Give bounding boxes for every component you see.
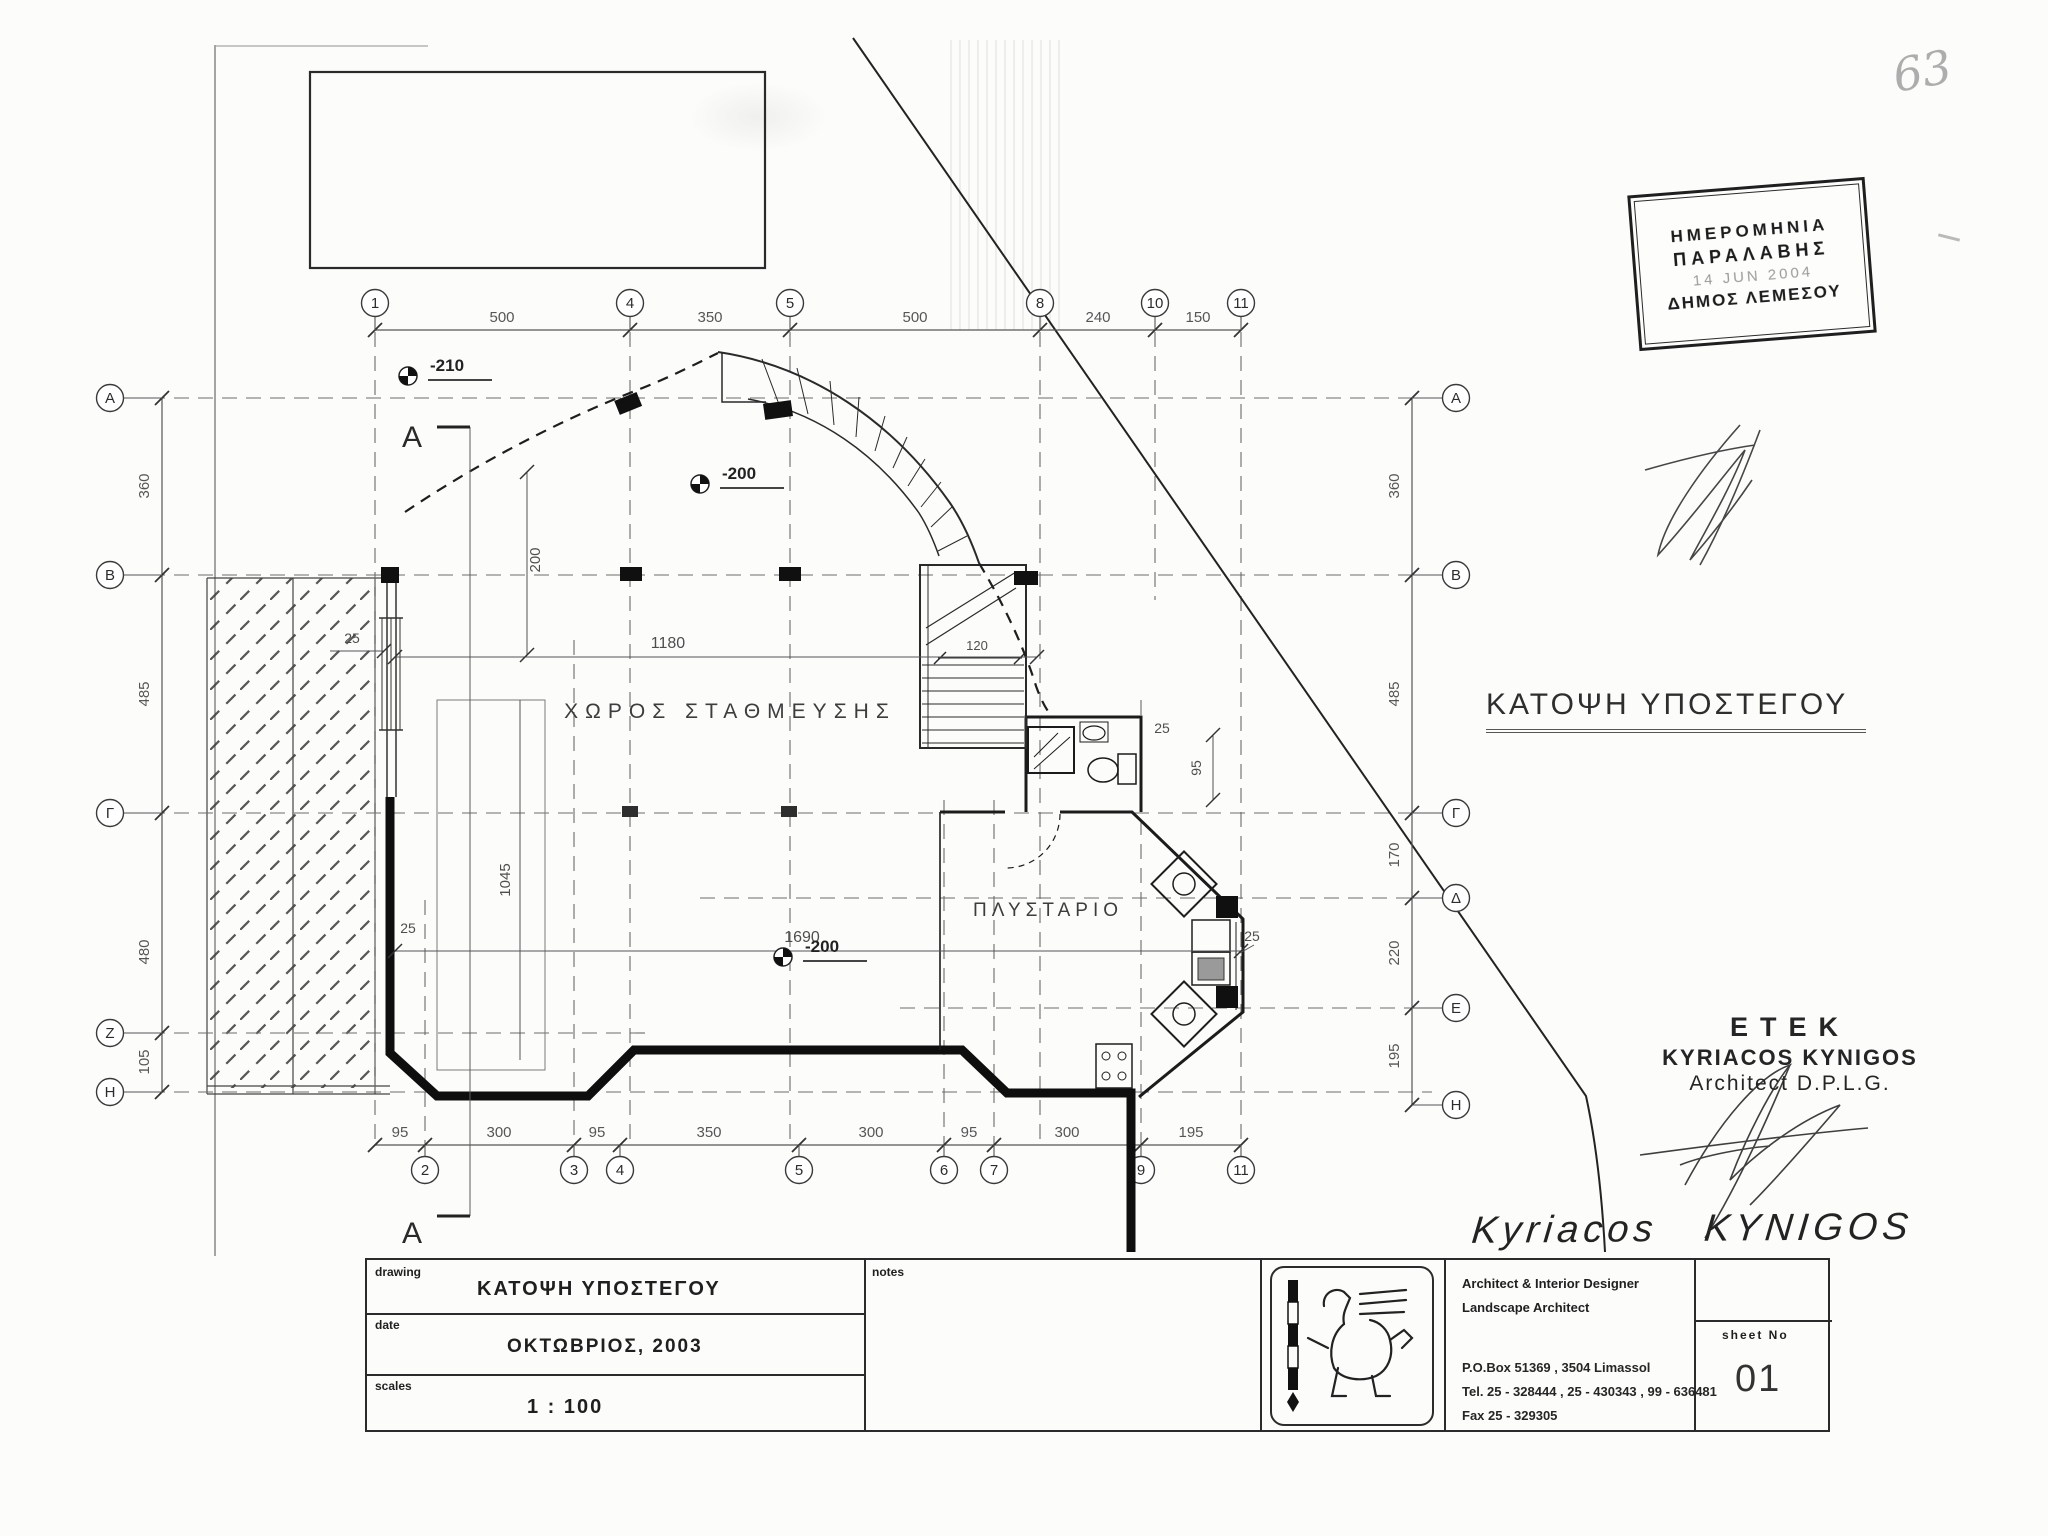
- svg-text:Β: Β: [105, 567, 115, 584]
- svg-text:5: 5: [795, 1162, 803, 1179]
- svg-text:195: 195: [1178, 1124, 1203, 1141]
- architect-name: KYRIACOS KYNIGOS: [1630, 1045, 1950, 1071]
- date-value: ΟΚΤΩΒΡΙΟΣ, 2003: [507, 1336, 703, 1358]
- svg-text:350: 350: [697, 309, 722, 326]
- curved-stair: [718, 352, 979, 563]
- toilet: [1088, 758, 1118, 782]
- svg-text:Η: Η: [1451, 1097, 1462, 1114]
- svg-text:120: 120: [966, 638, 988, 653]
- washbasin: [1080, 722, 1108, 742]
- svg-text:95: 95: [961, 1124, 978, 1141]
- office-address: P.O.Box 51369 , 3504 Limassol: [1462, 1356, 1717, 1380]
- svg-text:360: 360: [136, 473, 153, 498]
- svg-text:500: 500: [489, 309, 514, 326]
- svg-text:200: 200: [527, 547, 544, 572]
- office-desc: Architect & Interior Designer Landscape …: [1462, 1272, 1639, 1320]
- hatched-boundary-strip: [207, 578, 390, 1094]
- svg-text:300: 300: [858, 1124, 883, 1141]
- dim-right: 360 485 170 220 195 Α Β Γ Δ Ε Η: [1386, 385, 1470, 1119]
- dim-top: 500 350 500 240 150 1 4 5 8 10 11: [362, 290, 1255, 338]
- canopy-dashed-edge: [405, 353, 1053, 718]
- svg-text:485: 485: [1386, 681, 1403, 706]
- title-block: drawing ΚΑΤΟΨΗ ΥΠΟΣΤΕΓΟΥ date ΟΚΤΩΒΡΙΟΣ,…: [365, 1258, 1830, 1432]
- svg-text:105: 105: [136, 1049, 153, 1074]
- svg-text:Δ: Δ: [1451, 890, 1461, 907]
- svg-text:95: 95: [589, 1124, 606, 1141]
- logo-scale-bar: [1287, 1280, 1299, 1412]
- laundry-bay-walls: [940, 812, 1243, 1097]
- page-corner-number: 63: [1889, 39, 1956, 102]
- svg-text:1180: 1180: [651, 635, 686, 652]
- architect-stamp-text: ΕΤΕΚ KYRIACOS KYNIGOS Architect D.P.L.G.: [1630, 1012, 1950, 1096]
- office-contact: P.O.Box 51369 , 3504 Limassol Tel. 25 - …: [1462, 1356, 1717, 1428]
- architect-logo: [1270, 1266, 1434, 1426]
- svg-text:240: 240: [1085, 309, 1110, 326]
- svg-text:485: 485: [136, 681, 153, 706]
- plan-title: ΚΑΤΟΨΗ ΥΠΟΣΤΕΓΟΥ: [1486, 688, 1866, 733]
- columns: [381, 392, 1038, 817]
- architect-role: Architect D.P.L.G.: [1630, 1072, 1950, 1096]
- level-marker-210: -210: [399, 356, 492, 385]
- svg-text:-200: -200: [722, 464, 756, 483]
- level-markers: -210 -200 -200: [399, 356, 867, 966]
- svg-text:2: 2: [421, 1162, 429, 1179]
- left-wall-window: [379, 575, 403, 797]
- dim-left: 360 485 480 105 Α Β Γ Ζ Η: [97, 385, 170, 1106]
- signature-scribble-top: [1645, 425, 1760, 565]
- cooker: [1096, 1044, 1132, 1088]
- svg-text:360: 360: [1386, 473, 1403, 498]
- laundry-counter: [1096, 851, 1238, 1088]
- etek-org: ΕΤΕΚ: [1630, 1012, 1950, 1043]
- svg-text:1045: 1045: [497, 863, 514, 896]
- room-label-laundry: ΠΛΥΣΤΑΡΙΟ: [973, 900, 1123, 921]
- svg-text:-210: -210: [430, 356, 464, 375]
- svg-text:Ε: Ε: [1451, 1000, 1461, 1017]
- notes-label: notes: [872, 1265, 904, 1279]
- drawing-value: ΚΑΤΟΨΗ ΥΠΟΣΤΕΓΟΥ: [477, 1278, 721, 1301]
- dim-bottom: 95 300 95 350 300 95 300 195 2: [368, 1124, 1255, 1184]
- level-marker-200a: -200: [691, 464, 784, 493]
- svg-text:25: 25: [400, 920, 416, 936]
- sheet-label: sheet No: [1722, 1328, 1789, 1342]
- svg-text:11: 11: [1233, 1162, 1249, 1179]
- office-line2: Landscape Architect: [1462, 1296, 1639, 1320]
- svg-text:Α: Α: [105, 390, 115, 407]
- divider: [1260, 1260, 1262, 1430]
- drawing-label: drawing: [375, 1265, 421, 1279]
- svg-text:95: 95: [1188, 760, 1204, 776]
- shower: [1028, 727, 1074, 773]
- svg-text:25: 25: [1244, 928, 1260, 944]
- svg-text:A: A: [402, 421, 422, 454]
- svg-text:A: A: [402, 1217, 422, 1250]
- scales-label: scales: [375, 1379, 412, 1393]
- divider: [1444, 1260, 1446, 1430]
- svg-text:Γ: Γ: [1452, 805, 1460, 822]
- svg-text:3: 3: [570, 1162, 578, 1179]
- scales-value: 1 : 100: [527, 1396, 603, 1419]
- logo-griffin: [1308, 1290, 1412, 1396]
- ramp-outline: [437, 700, 545, 1070]
- location-plan-box: [310, 72, 765, 268]
- svg-text:7: 7: [990, 1162, 998, 1179]
- svg-text:150: 150: [1185, 309, 1210, 326]
- svg-text:350: 350: [696, 1124, 721, 1141]
- svg-text:6: 6: [940, 1162, 948, 1179]
- office-tel: Tel. 25 - 328444 , 25 - 430343 , 99 - 63…: [1462, 1380, 1717, 1404]
- inner-dimensions: 1180 1690 120 200 1045 25 25 25 25 95: [330, 465, 1260, 1060]
- svg-text:Γ: Γ: [106, 805, 114, 822]
- wc-room: [1026, 717, 1141, 812]
- section-line-A: A A: [402, 421, 470, 1250]
- divider: [1694, 1320, 1832, 1322]
- svg-text:300: 300: [1054, 1124, 1079, 1141]
- room-label-parking: ΧΩΡΟΣ ΣΤΑΘΜΕΥΣΗΣ: [564, 700, 896, 723]
- svg-text:170: 170: [1386, 842, 1403, 867]
- svg-text:9: 9: [1137, 1162, 1145, 1179]
- divider: [367, 1374, 864, 1376]
- scanned-drawing-sheet: 500 350 500 240 150 1 4 5 8 10 11: [0, 0, 2048, 1536]
- municipality-stamp: ΗΜΕΡΟΜΗΝΙΑ ΠΑΡΑΛΑΒΗΣ 14 JUN 2004 ΔΗΜΟΣ Λ…: [1627, 177, 1877, 351]
- svg-text:11: 11: [1233, 295, 1249, 312]
- svg-text:25: 25: [1154, 720, 1170, 736]
- svg-text:Α: Α: [1451, 390, 1461, 407]
- sheet-number: 01: [1735, 1358, 1781, 1401]
- svg-text:4: 4: [626, 295, 634, 312]
- svg-text:25: 25: [344, 630, 360, 646]
- svg-text:480: 480: [136, 939, 153, 964]
- svg-text:Β: Β: [1451, 567, 1461, 584]
- svg-text:1: 1: [371, 295, 379, 312]
- svg-text:195: 195: [1386, 1043, 1403, 1068]
- divider: [864, 1260, 866, 1430]
- griffin-logo: [1272, 1268, 1428, 1420]
- date-label: date: [375, 1318, 400, 1332]
- svg-text:500: 500: [902, 309, 927, 326]
- svg-text:10: 10: [1147, 295, 1164, 312]
- svg-text:220: 220: [1386, 940, 1403, 965]
- svg-text:Ζ: Ζ: [105, 1025, 114, 1042]
- office-line1: Architect & Interior Designer: [1462, 1272, 1639, 1296]
- svg-text:4: 4: [616, 1162, 624, 1179]
- office-fax: Fax 25 - 329305: [1462, 1404, 1717, 1428]
- svg-text:8: 8: [1036, 295, 1044, 312]
- handwritten-name: Kyriacos KYNIGOS: [1470, 1206, 1895, 1253]
- svg-text:95: 95: [392, 1124, 409, 1141]
- svg-text:-200: -200: [805, 937, 839, 956]
- svg-text:300: 300: [486, 1124, 511, 1141]
- svg-text:5: 5: [786, 295, 794, 312]
- svg-text:Η: Η: [105, 1084, 116, 1101]
- divider: [367, 1313, 864, 1315]
